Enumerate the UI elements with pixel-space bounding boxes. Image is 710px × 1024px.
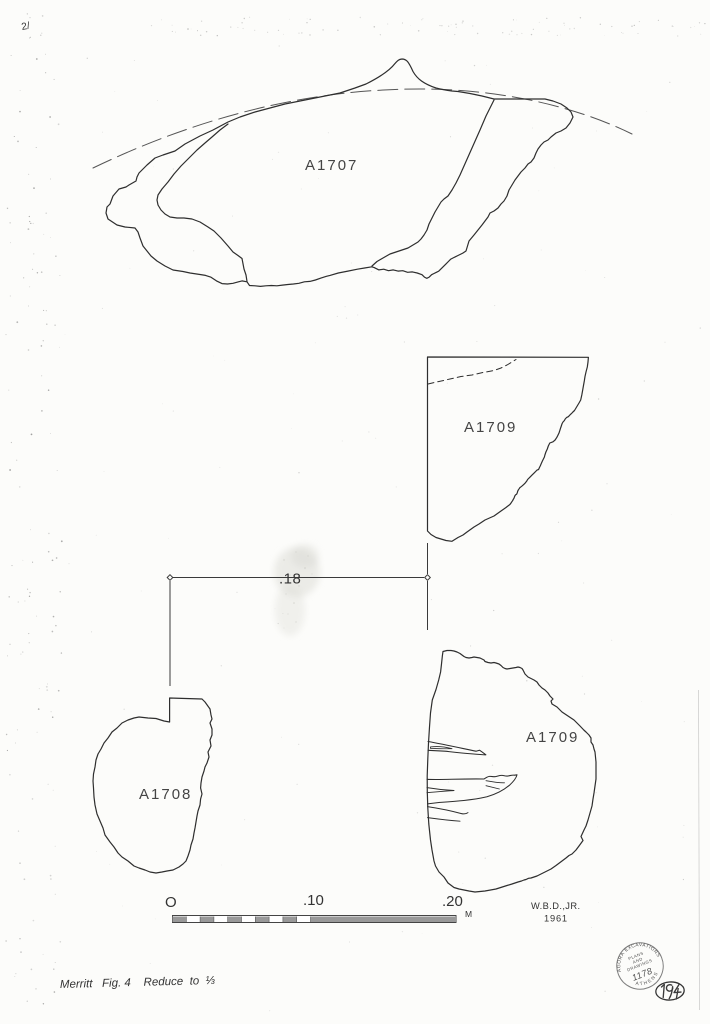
svg-text:O: O (165, 894, 177, 911)
svg-text:.18: .18 (279, 571, 301, 588)
svg-text:A1707: A1707 (305, 157, 358, 174)
svg-text:W.B.D.,JR.: W.B.D.,JR. (531, 901, 580, 911)
svg-text:A1709: A1709 (464, 419, 517, 436)
svg-text:A1709: A1709 (526, 729, 579, 746)
svg-text:.20: .20 (442, 893, 463, 910)
svg-text:M: M (465, 909, 472, 919)
svg-text:.10: .10 (303, 892, 324, 909)
svg-text:A1708: A1708 (139, 786, 192, 803)
svg-text:1961: 1961 (544, 914, 568, 924)
